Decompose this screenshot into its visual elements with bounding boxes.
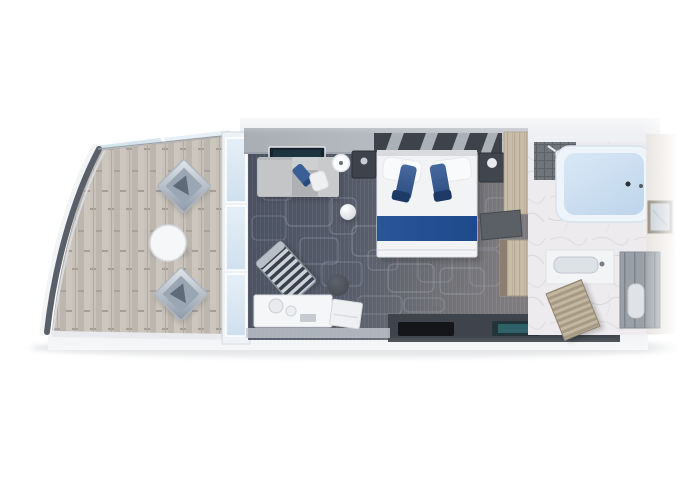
bathtub-basin (564, 153, 644, 215)
balcony-round-table (150, 225, 186, 261)
toilet (628, 284, 644, 318)
sphere-stool (340, 204, 356, 220)
glass-pane (226, 206, 246, 270)
console-bowl-small (286, 306, 296, 316)
glass-sliding-door (222, 132, 250, 344)
nightstand-right-lamp (487, 158, 497, 168)
tub-drain (626, 182, 631, 187)
fade-bottom (0, 336, 680, 416)
wardrobe-edge (500, 240, 507, 296)
sofa-lounge-cushion (258, 160, 292, 196)
faucet (600, 262, 605, 267)
bedroom-desk (480, 210, 522, 240)
wood-divider-wall (504, 132, 530, 214)
dark-mat (398, 322, 454, 336)
tv-screen (273, 150, 321, 157)
sofa-chaise (257, 157, 342, 200)
fade-left (0, 100, 38, 400)
side-table-item (339, 161, 343, 165)
console-bowl (269, 299, 283, 313)
console-bench (329, 299, 362, 329)
bed-head-edge (377, 150, 477, 156)
balcony-wood-deck (52, 136, 230, 338)
floorplan-canvas (0, 0, 680, 486)
fade-right (642, 0, 680, 486)
sink-basin (554, 257, 598, 273)
room-balcony (43, 130, 233, 338)
bed-runner (377, 216, 477, 241)
ottoman (327, 274, 349, 296)
floorplan-image (0, 0, 680, 486)
nightstand-left-lamp (361, 158, 368, 165)
glass-pane (226, 138, 246, 202)
fade-top (0, 96, 680, 134)
console-tray (300, 314, 316, 322)
glass-pane (226, 274, 246, 336)
